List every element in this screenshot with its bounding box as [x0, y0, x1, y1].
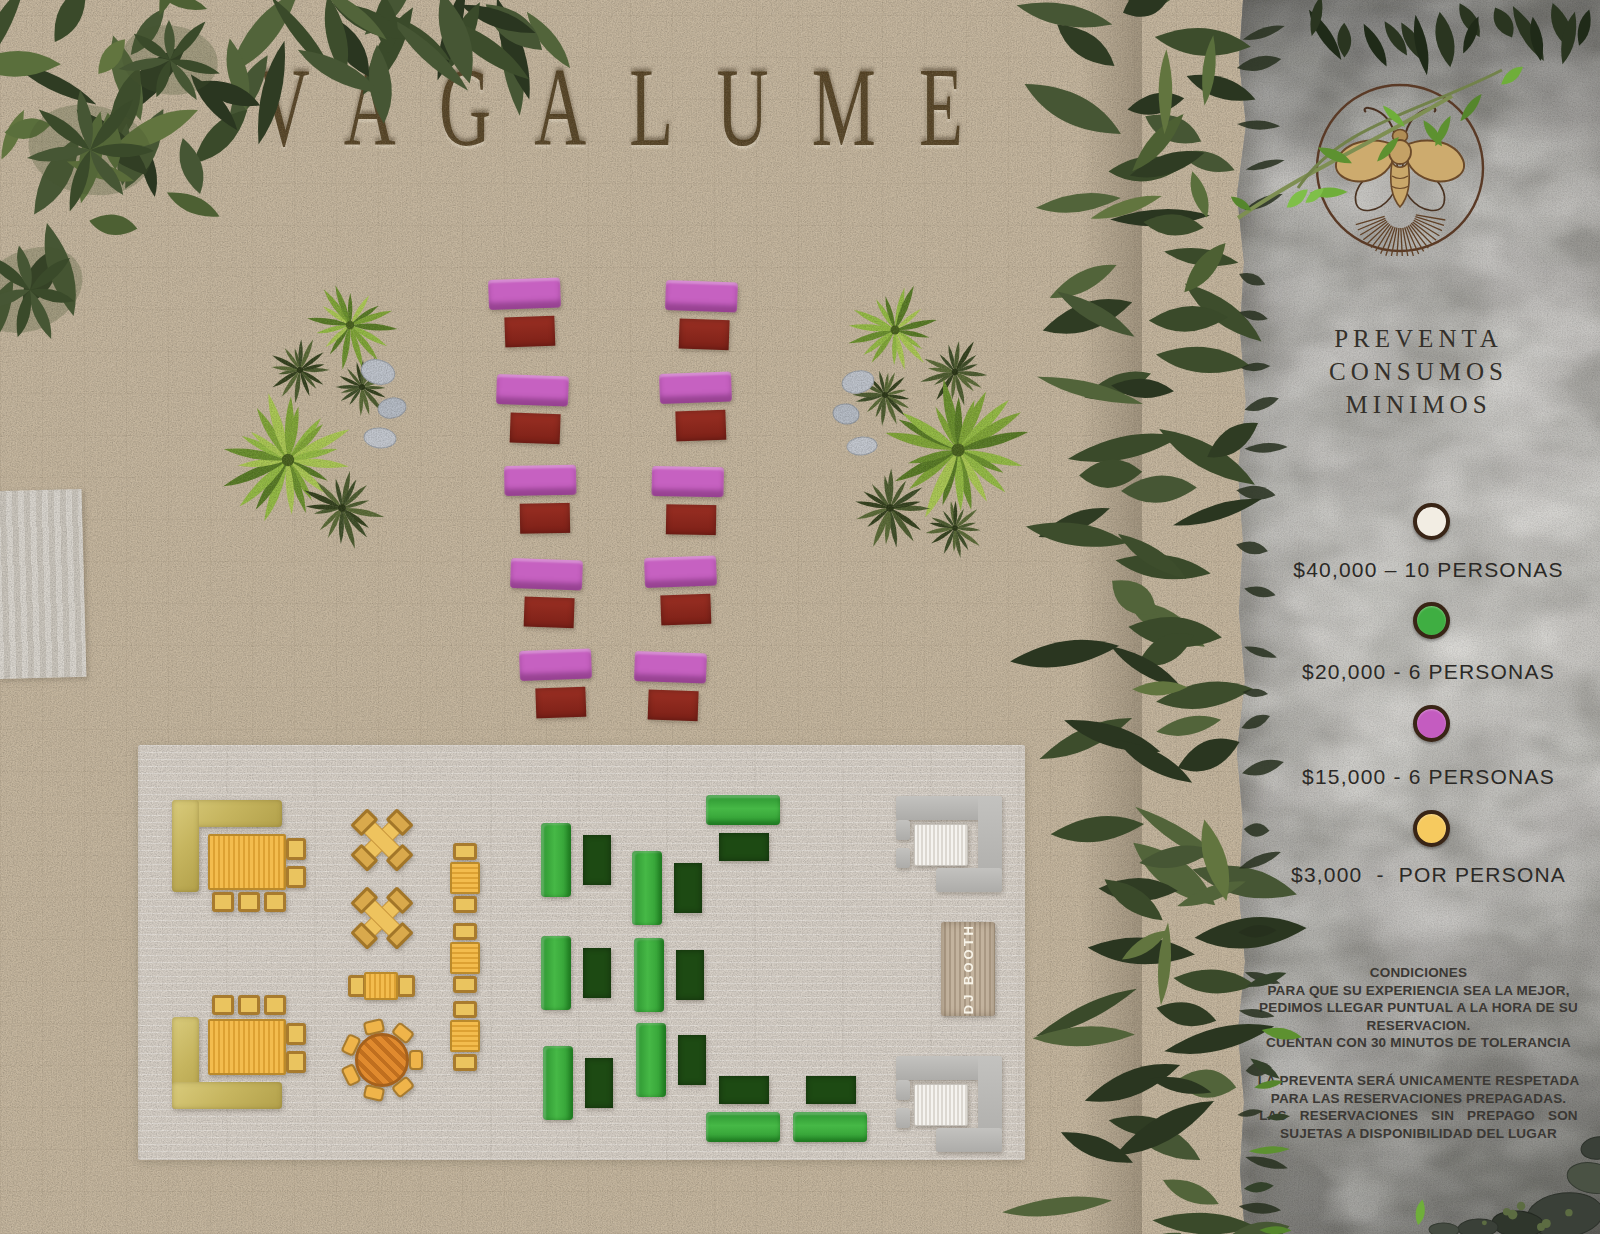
sofa — [504, 465, 577, 496]
chair — [453, 1054, 477, 1071]
presale-heading: PREVENTA CONSUMOS MINIMOS — [1237, 322, 1600, 421]
table — [583, 948, 611, 998]
sofa — [706, 1112, 780, 1142]
presale-note-text: LA PREVENTA SERÁ UNICAMENTE RESPETADA PA… — [1241, 1072, 1596, 1142]
table — [585, 1058, 613, 1108]
chair — [238, 995, 260, 1015]
table — [524, 597, 575, 629]
presale-line: SUJETAS A DISPONIBILIDAD DEL LUGAR — [1241, 1125, 1596, 1143]
sofa — [936, 868, 1002, 892]
table — [450, 862, 480, 894]
legend-dot-white — [1413, 503, 1450, 540]
table — [914, 824, 968, 866]
table — [914, 1084, 968, 1126]
sofa — [706, 795, 780, 825]
sofa — [793, 1112, 867, 1142]
chair — [286, 1023, 306, 1045]
table — [679, 319, 730, 351]
chair — [286, 1051, 306, 1073]
heading-line: CONSUMOS — [1237, 355, 1600, 388]
sofa — [510, 558, 583, 590]
sofa — [636, 1023, 666, 1097]
table — [510, 413, 561, 445]
info-panel: PREVENTA CONSUMOS MINIMOS $40,000 – 10 P… — [1237, 0, 1600, 1234]
sofa — [172, 800, 199, 892]
table — [535, 687, 586, 719]
sofa — [896, 1080, 910, 1100]
table — [806, 1076, 856, 1104]
sofa — [896, 848, 910, 868]
table — [450, 942, 480, 974]
chair — [212, 995, 234, 1015]
sofa — [896, 820, 910, 840]
legend-dot-magenta — [1413, 705, 1450, 742]
sofa — [541, 823, 571, 897]
sofa — [634, 651, 707, 683]
x-table-top — [337, 795, 428, 886]
sofa — [651, 466, 724, 497]
table — [666, 504, 717, 535]
table — [504, 316, 555, 348]
chair — [453, 1001, 477, 1018]
table — [648, 690, 699, 722]
sofa — [488, 277, 561, 309]
presale-line: PARA LAS RESERVACIONES PREPAGADAS. — [1241, 1090, 1596, 1108]
table — [450, 1020, 480, 1052]
sofa — [496, 374, 569, 406]
chair — [397, 975, 415, 997]
x-table-top — [337, 873, 428, 964]
table — [520, 503, 571, 534]
conditions-line: PARA QUE SU EXPERIENCIA SEA LA MEJOR, — [1241, 982, 1596, 1000]
sofa — [659, 371, 732, 403]
conditions-line: CUENTAN CON 30 MINUTOS DE TOLERANCIA — [1241, 1034, 1596, 1052]
table — [674, 863, 702, 913]
table — [719, 1076, 769, 1104]
chair — [286, 866, 306, 888]
table — [678, 1035, 706, 1085]
venue-map-poster: VAGALUME — [0, 0, 1600, 1234]
legend-label: $40,000 – 10 PERSONAS — [1247, 558, 1600, 582]
legend-label: $20,000 - 6 PERSONAS — [1247, 660, 1600, 684]
chair — [264, 892, 286, 912]
conditions-line: RESERVACION. — [1241, 1017, 1596, 1035]
presale-line: LA PREVENTA SERÁ UNICAMENTE RESPETADA — [1241, 1072, 1596, 1090]
table — [355, 1033, 409, 1087]
chair — [264, 995, 286, 1015]
chair — [212, 892, 234, 912]
firefly-logo-icon — [1312, 80, 1488, 256]
table — [208, 834, 286, 890]
table — [364, 972, 398, 1000]
sofa — [936, 1128, 1002, 1152]
heading-line: PREVENTA — [1237, 322, 1600, 355]
sofa — [644, 555, 717, 587]
table — [719, 833, 769, 861]
conditions-line: PEDIMOS LLEGAR PUNTUAL A LA HORA DE SU — [1241, 999, 1596, 1017]
table — [208, 1019, 286, 1075]
dj-booth-desk: DJ BOOTH — [941, 922, 995, 1016]
chair — [453, 923, 477, 940]
chair — [286, 838, 306, 860]
legend-label: $15,000 - 6 PERSONAS — [1247, 765, 1600, 789]
chair — [453, 896, 477, 913]
sofa — [665, 280, 738, 312]
chair — [453, 976, 477, 993]
sofa — [172, 1082, 282, 1109]
table — [583, 835, 611, 885]
sofa — [541, 936, 571, 1010]
table — [676, 950, 704, 1000]
sofa — [543, 1046, 573, 1120]
conditions-title: CONDICIONES — [1241, 964, 1596, 982]
table — [660, 594, 711, 626]
legend-dot-yellow — [1413, 810, 1450, 847]
heading-line: MINIMOS — [1237, 388, 1600, 421]
sofa — [519, 648, 592, 680]
chair — [238, 892, 260, 912]
sofa — [634, 938, 664, 1012]
dj-booth-label: DJ BOOTH — [961, 923, 976, 1014]
table — [675, 410, 726, 442]
presale-line: LAS RESERVACIONES SIN PREPAGO SON — [1241, 1107, 1596, 1125]
sofa — [896, 1108, 910, 1128]
chair — [409, 1050, 423, 1070]
conditions-text: CONDICIONES PARA QUE SU EXPERIENCIA SEA … — [1241, 964, 1596, 1052]
legend-dot-green — [1413, 602, 1450, 639]
sofa — [632, 851, 662, 925]
legend-label: $3,000 - POR PERSONA — [1247, 863, 1600, 887]
chair — [453, 843, 477, 860]
